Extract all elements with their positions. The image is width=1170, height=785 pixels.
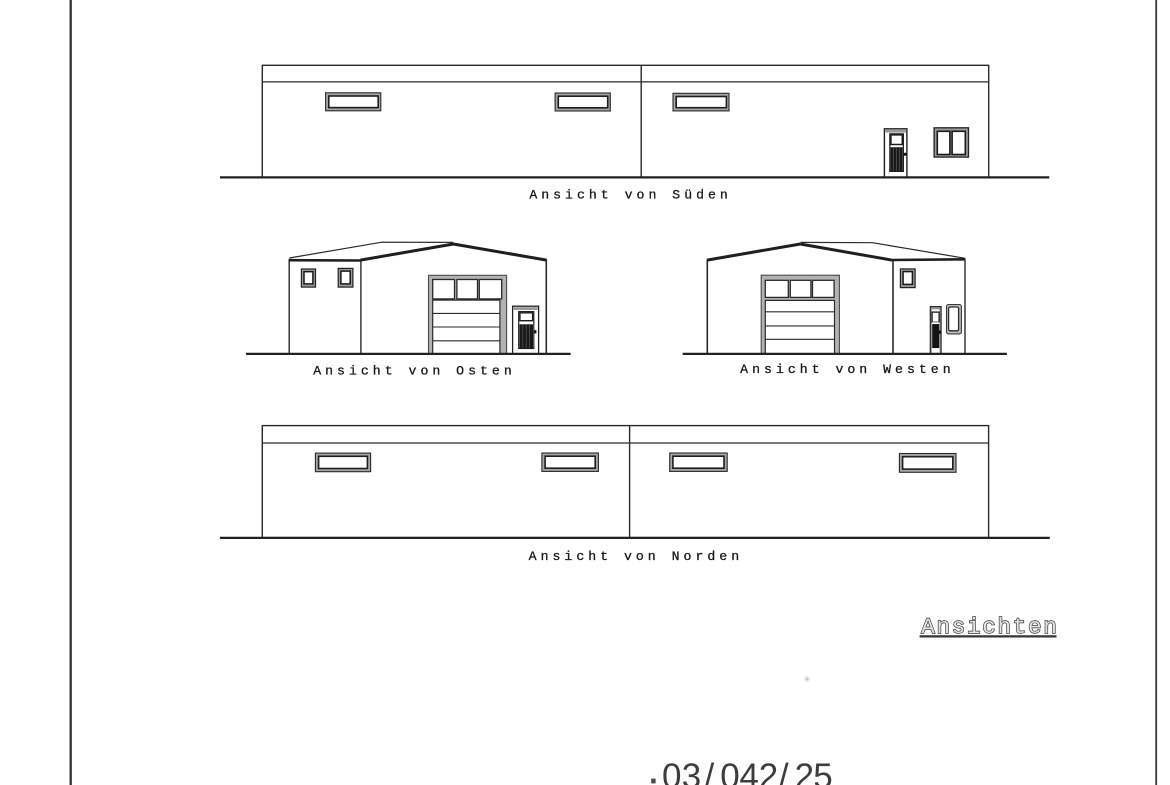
svg-text:Ansicht von Norden: Ansicht von Norden [529, 549, 743, 564]
svg-text:Ansicht von Osten: Ansicht von Osten [313, 364, 516, 379]
svg-text:Ansicht von Westen: Ansicht von Westen [740, 362, 954, 377]
svg-text:03/042/25: 03/042/25 [662, 757, 833, 785]
svg-text:Ansicht von Süden: Ansicht von Süden [529, 188, 732, 203]
